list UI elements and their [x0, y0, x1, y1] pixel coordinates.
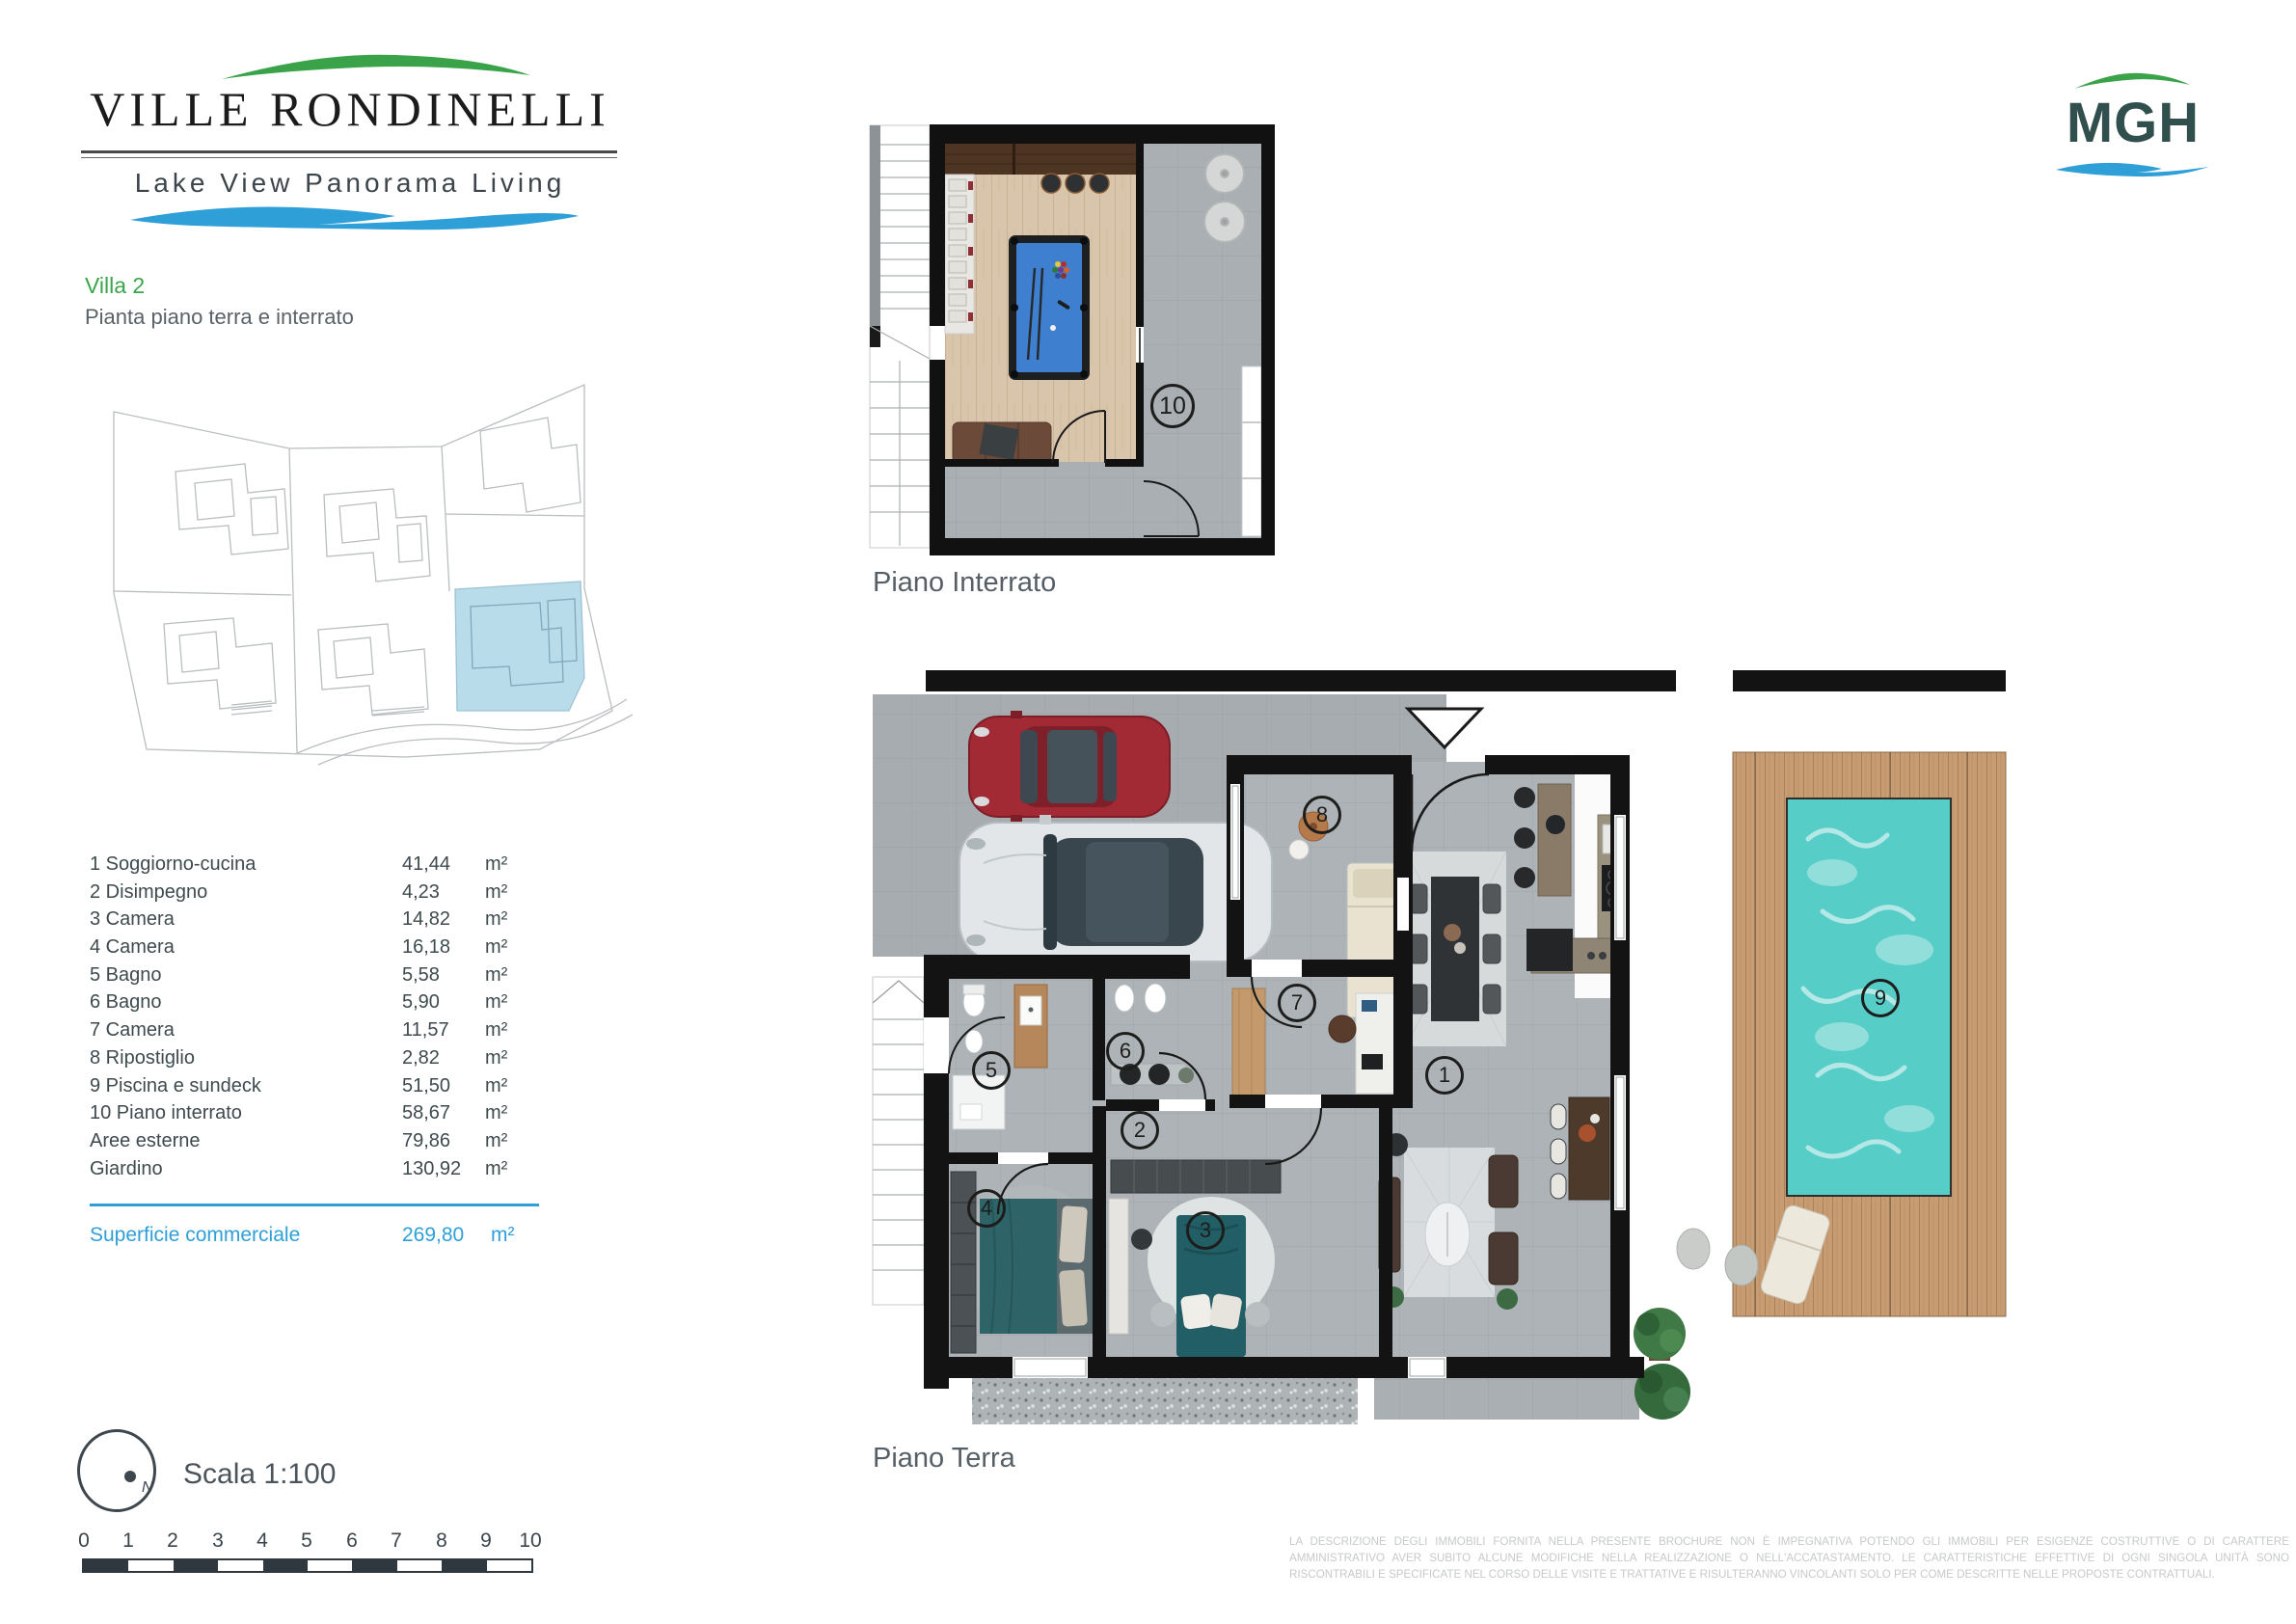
wine-rack	[945, 175, 974, 334]
table-row: 3 Camera14,82m²	[90, 906, 543, 934]
ground-floor-caption: Piano Terra	[873, 1443, 1015, 1475]
brand-divider	[81, 150, 617, 153]
room-badge-9: 9	[1861, 979, 1900, 1017]
pool-table	[1009, 235, 1090, 380]
room-badge-3: 3	[1186, 1211, 1225, 1250]
bar-stools	[1041, 174, 1109, 193]
brand-subtitle: Lake View Panorama Living	[77, 168, 623, 199]
table-row: 9 Piscina e sundeck51,50m²	[90, 1072, 543, 1100]
basement-caption: Piano Interrato	[873, 567, 1056, 599]
room-badge-6: 6	[1106, 1032, 1145, 1070]
green-swoosh-icon	[222, 55, 530, 79]
mgh-text: MGH	[2046, 91, 2220, 155]
table-row: Aree esterne79,86m²	[90, 1127, 543, 1155]
blue-swoosh-icon	[130, 207, 579, 230]
partner-logo: MGH	[2046, 69, 2220, 185]
basement-floorplan-graphic	[868, 123, 1278, 567]
scale-bar-segments	[82, 1558, 533, 1573]
room-badge-10: 10	[1150, 384, 1195, 428]
room-badge-5: 5	[972, 1051, 1011, 1090]
table-row: 4 Camera16,18m²	[90, 934, 543, 961]
table-row: 1 Soggiorno-cucina41,44m²	[90, 851, 543, 879]
commercial-area-total: Superficie commerciale 269,80 m²	[90, 1204, 539, 1253]
pouf	[1725, 1245, 1758, 1286]
table-row: 2 Disimpegno4,23m²	[90, 879, 543, 907]
table-row: 6 Bagno5,90m²	[90, 988, 543, 1016]
room-badge-8: 8	[1303, 796, 1341, 834]
brand-swooshes-graphic	[77, 46, 623, 263]
gravel-strip	[972, 1376, 1358, 1424]
table-row: 8 Ripostiglio2,82m²	[90, 1044, 543, 1072]
white-car	[959, 815, 1272, 969]
red-car	[969, 711, 1170, 823]
pouf	[1677, 1229, 1710, 1269]
legal-disclaimer: LA DESCRIZIONE DEGLI IMMOBILI FORNITA NE…	[1289, 1534, 2289, 1583]
plan-subtitle: Pianta piano terra e interrato	[85, 305, 354, 330]
mgh-green-swoosh-icon	[2069, 69, 2195, 91]
storage-shelves	[1242, 366, 1261, 536]
total-value: 269,80	[402, 1224, 464, 1247]
room-badge-2: 2	[1121, 1111, 1159, 1150]
brand-title: VILLE RONDINELLI	[77, 81, 623, 137]
scale-label: Scala 1:100	[183, 1458, 336, 1491]
table-row: 5 Bagno5,58m²	[90, 961, 543, 989]
brochure-page: VILLE RONDINELLI Lake View Panorama Livi…	[0, 0, 2296, 1624]
table-row: 7 Camera11,57m²	[90, 1016, 543, 1044]
basement-sofa	[953, 422, 1051, 463]
basement-floorplan: 10	[868, 123, 1278, 567]
site-plan	[87, 371, 641, 767]
ground-floorplan: 1 2 3 4 5 6 7 8 9	[868, 670, 2064, 1442]
highlighted-lot	[455, 582, 584, 711]
scale-bar: 0 1 2 3 4 5 6 7 8 9 10	[82, 1529, 535, 1578]
total-unit: m²	[491, 1224, 515, 1247]
villa-title: Villa 2	[85, 273, 145, 299]
site-plan-graphic	[87, 371, 641, 767]
table-row: Giardino130,92m²	[90, 1155, 543, 1183]
compass-north-label: N	[142, 1479, 153, 1497]
basement-stairs	[870, 125, 930, 548]
ground-floorplan-graphic	[868, 670, 2064, 1442]
compass-dot-icon	[124, 1471, 136, 1482]
mgh-blue-swoosh-icon	[2054, 158, 2212, 179]
scale-ticks: 0 1 2 3 4 5 6 7 8 9 10	[82, 1529, 535, 1553]
brand-logo: VILLE RONDINELLI Lake View Panorama Livi…	[77, 46, 623, 263]
dining-area	[1406, 852, 1506, 1046]
room-badge-1: 1	[1425, 1056, 1464, 1095]
table-row: 10 Piano interrato58,67m²	[90, 1099, 543, 1127]
brand-divider-thin	[81, 157, 617, 158]
room-badge-7: 7	[1278, 984, 1316, 1022]
room-badge-4: 4	[967, 1189, 1006, 1228]
room-area-table: 1 Soggiorno-cucina41,44m² 2 Disimpegno4,…	[90, 851, 543, 1182]
total-label: Superficie commerciale	[90, 1224, 300, 1247]
entry-stairs	[873, 977, 924, 1305]
bar-counter	[945, 144, 1136, 175]
north-compass-icon	[77, 1429, 156, 1512]
